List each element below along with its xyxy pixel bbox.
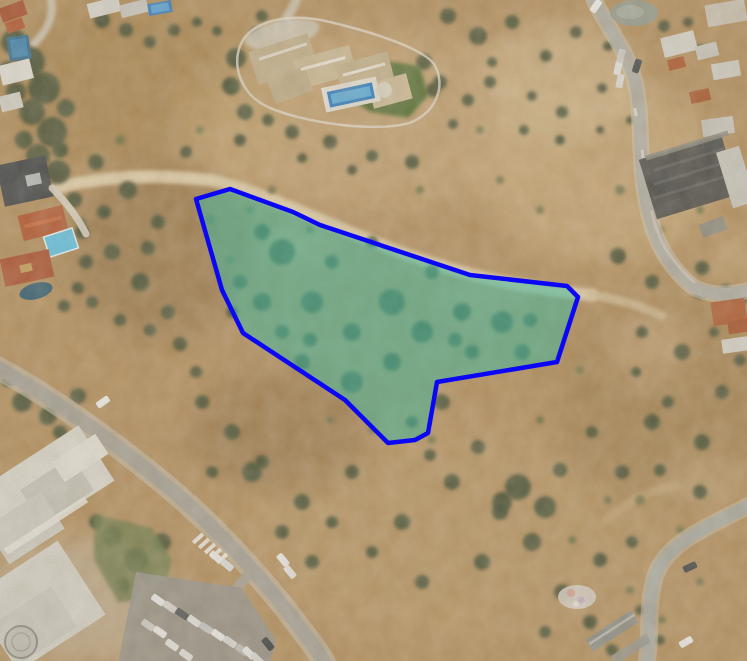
satellite-map-svg [0, 0, 747, 661]
satellite-map[interactable] [0, 0, 747, 661]
